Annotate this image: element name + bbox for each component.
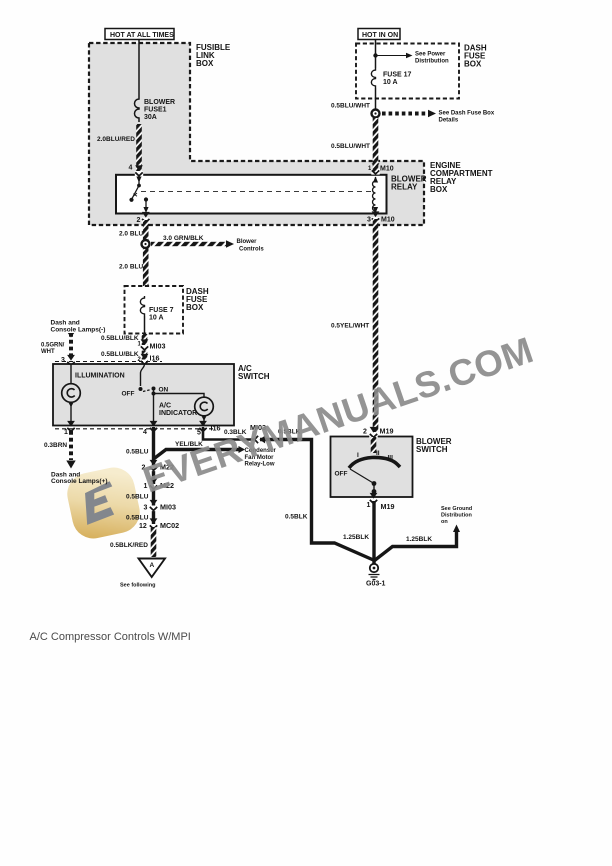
svg-text:M19: M19	[381, 502, 395, 511]
svg-text:ON: ON	[159, 387, 169, 394]
svg-text:12: 12	[139, 523, 147, 530]
svg-text:0.5BLU: 0.5BLU	[126, 515, 149, 522]
svg-text:OFF: OFF	[122, 391, 135, 398]
svg-text:0.5BLU/BLK: 0.5BLU/BLK	[101, 351, 139, 358]
svg-text:0.5BLU: 0.5BLU	[126, 494, 149, 501]
svg-text:HOT IN ON: HOT IN ON	[362, 32, 398, 39]
svg-text:BOX: BOX	[464, 60, 482, 69]
svg-text:ILLUMINATION: ILLUMINATION	[75, 373, 125, 380]
svg-text:OFF: OFF	[335, 471, 348, 478]
svg-text:M10: M10	[381, 217, 395, 224]
svg-text:Console Lamps(-): Console Lamps(-)	[51, 327, 106, 334]
svg-text:1.25BLK: 1.25BLK	[343, 534, 369, 541]
svg-text:A/C: A/C	[159, 403, 171, 410]
svg-text:0.3BRN: 0.3BRN	[44, 442, 67, 449]
svg-text:3: 3	[367, 217, 371, 224]
svg-text:0.5BLK/RED: 0.5BLK/RED	[110, 542, 148, 549]
svg-text:10 A: 10 A	[149, 315, 164, 322]
svg-text:A: A	[150, 562, 155, 569]
svg-text:FUSE 17: FUSE 17	[383, 72, 412, 79]
svg-text:2: 2	[363, 429, 367, 436]
svg-text:2.0 BLU: 2.0 BLU	[119, 231, 144, 238]
svg-text:5: 5	[197, 430, 201, 437]
svg-text:BOX: BOX	[430, 185, 448, 194]
svg-text:MC02: MC02	[160, 521, 179, 530]
svg-text:2: 2	[137, 217, 141, 224]
svg-text:MI03: MI03	[150, 342, 166, 351]
svg-text:30A: 30A	[144, 114, 157, 121]
svg-text:2.0 BLU: 2.0 BLU	[119, 264, 144, 271]
svg-text:1: 1	[64, 429, 68, 436]
svg-text:0.5BLU: 0.5BLU	[126, 449, 149, 456]
svg-text:M19: M19	[380, 427, 394, 436]
svg-text:INDICATOR: INDICATOR	[159, 410, 197, 417]
svg-text:FUSE1: FUSE1	[144, 107, 167, 114]
svg-text:0.5BLU/WHT: 0.5BLU/WHT	[331, 103, 370, 110]
svg-text:BLOWER: BLOWER	[144, 99, 175, 106]
svg-text:I16: I16	[211, 424, 221, 433]
svg-text:3.0 GRN/BLK: 3.0 GRN/BLK	[163, 235, 204, 242]
svg-text:4: 4	[129, 165, 133, 172]
svg-text:I: I	[357, 452, 359, 459]
svg-text:SWITCH: SWITCH	[238, 372, 270, 381]
svg-text:BOX: BOX	[196, 59, 214, 68]
svg-text:HOT AT ALL TIMES: HOT AT ALL TIMES	[110, 32, 174, 39]
svg-text:G03-1: G03-1	[366, 581, 386, 588]
svg-text:0.5BLU/WHT: 0.5BLU/WHT	[331, 143, 370, 150]
svg-text:0.5YEL/WHT: 0.5YEL/WHT	[331, 323, 369, 330]
svg-text:BOX: BOX	[186, 303, 204, 312]
svg-text:on: on	[441, 519, 448, 525]
svg-text:Blower: Blower	[237, 239, 258, 245]
svg-text:See Dash Fuse Box: See Dash Fuse Box	[439, 111, 495, 117]
svg-text:10 A: 10 A	[383, 79, 398, 86]
svg-text:See Ground: See Ground	[441, 506, 472, 512]
svg-text:Distribution: Distribution	[415, 59, 449, 65]
svg-text:MI03: MI03	[160, 503, 176, 512]
svg-text:0.5BLU/BLK: 0.5BLU/BLK	[101, 335, 139, 342]
svg-text:Console Lamps(+): Console Lamps(+)	[51, 478, 108, 485]
svg-text:3: 3	[144, 505, 148, 512]
svg-text:WHT: WHT	[41, 349, 55, 355]
svg-text:II: II	[376, 450, 380, 457]
svg-text:SWITCH: SWITCH	[416, 445, 448, 454]
svg-text:See Power: See Power	[415, 52, 446, 58]
svg-text:See following: See following	[120, 583, 155, 589]
svg-text:FUSE 7: FUSE 7	[149, 307, 174, 314]
svg-text:2.0BLU/RED: 2.0BLU/RED	[97, 136, 135, 143]
svg-text:III: III	[388, 455, 394, 462]
svg-text:Distribution: Distribution	[441, 513, 472, 519]
svg-text:4: 4	[143, 429, 147, 436]
svg-text:Dash and: Dash and	[51, 320, 80, 327]
svg-text:Controls: Controls	[239, 247, 264, 253]
svg-text:1: 1	[367, 502, 371, 509]
svg-text:Details: Details	[439, 118, 459, 124]
svg-text:M10: M10	[380, 166, 394, 173]
svg-text:0.5BLK: 0.5BLK	[285, 514, 308, 521]
svg-text:0.5GRN/: 0.5GRN/	[41, 343, 65, 349]
svg-text:RELAY: RELAY	[391, 183, 418, 192]
svg-text:3: 3	[61, 357, 65, 364]
svg-text:1.25BLK: 1.25BLK	[406, 536, 432, 543]
svg-text:A/C Compressor Controls W/MPI: A/C Compressor Controls W/MPI	[30, 631, 191, 643]
